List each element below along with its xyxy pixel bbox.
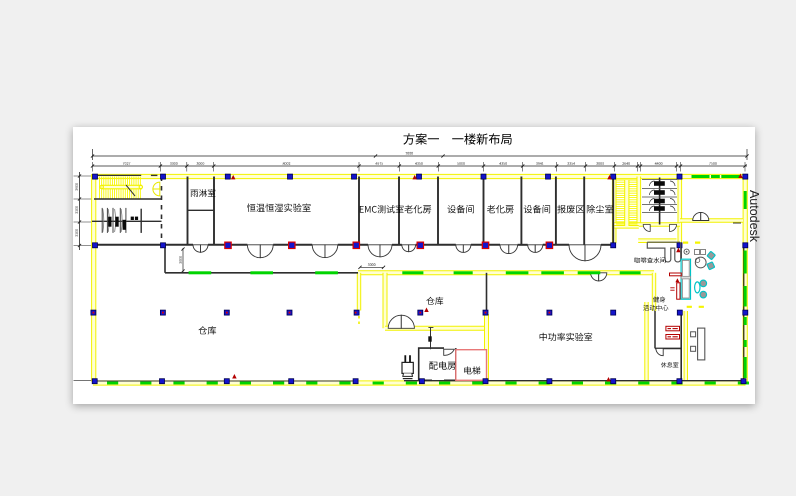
svg-text:Autodesk: Autodesk — [747, 190, 761, 243]
